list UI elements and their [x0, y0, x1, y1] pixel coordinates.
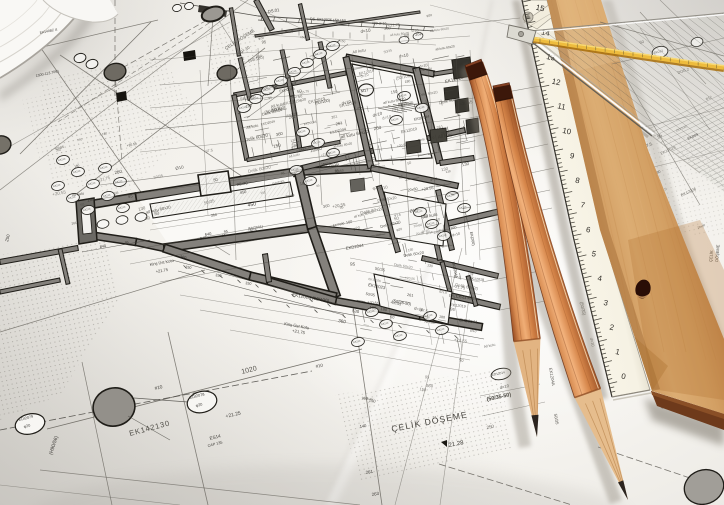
svg-text:50: 50 — [404, 33, 410, 39]
svg-text:150: 150 — [361, 395, 369, 400]
svg-text:95: 95 — [124, 240, 129, 245]
svg-text:d=10: d=10 — [285, 29, 294, 34]
svg-text:261: 261 — [407, 292, 414, 298]
svg-text:12: 12 — [551, 77, 561, 88]
svg-text:150: 150 — [340, 39, 346, 43]
svg-text:360: 360 — [426, 383, 434, 388]
svg-text:95: 95 — [398, 175, 403, 180]
svg-text:180 d=10: 180 d=10 — [372, 21, 387, 26]
svg-text:φ20: φ20 — [426, 13, 432, 18]
svg-text:Ø10: Ø10 — [411, 28, 418, 32]
svg-text:50: 50 — [114, 191, 119, 196]
